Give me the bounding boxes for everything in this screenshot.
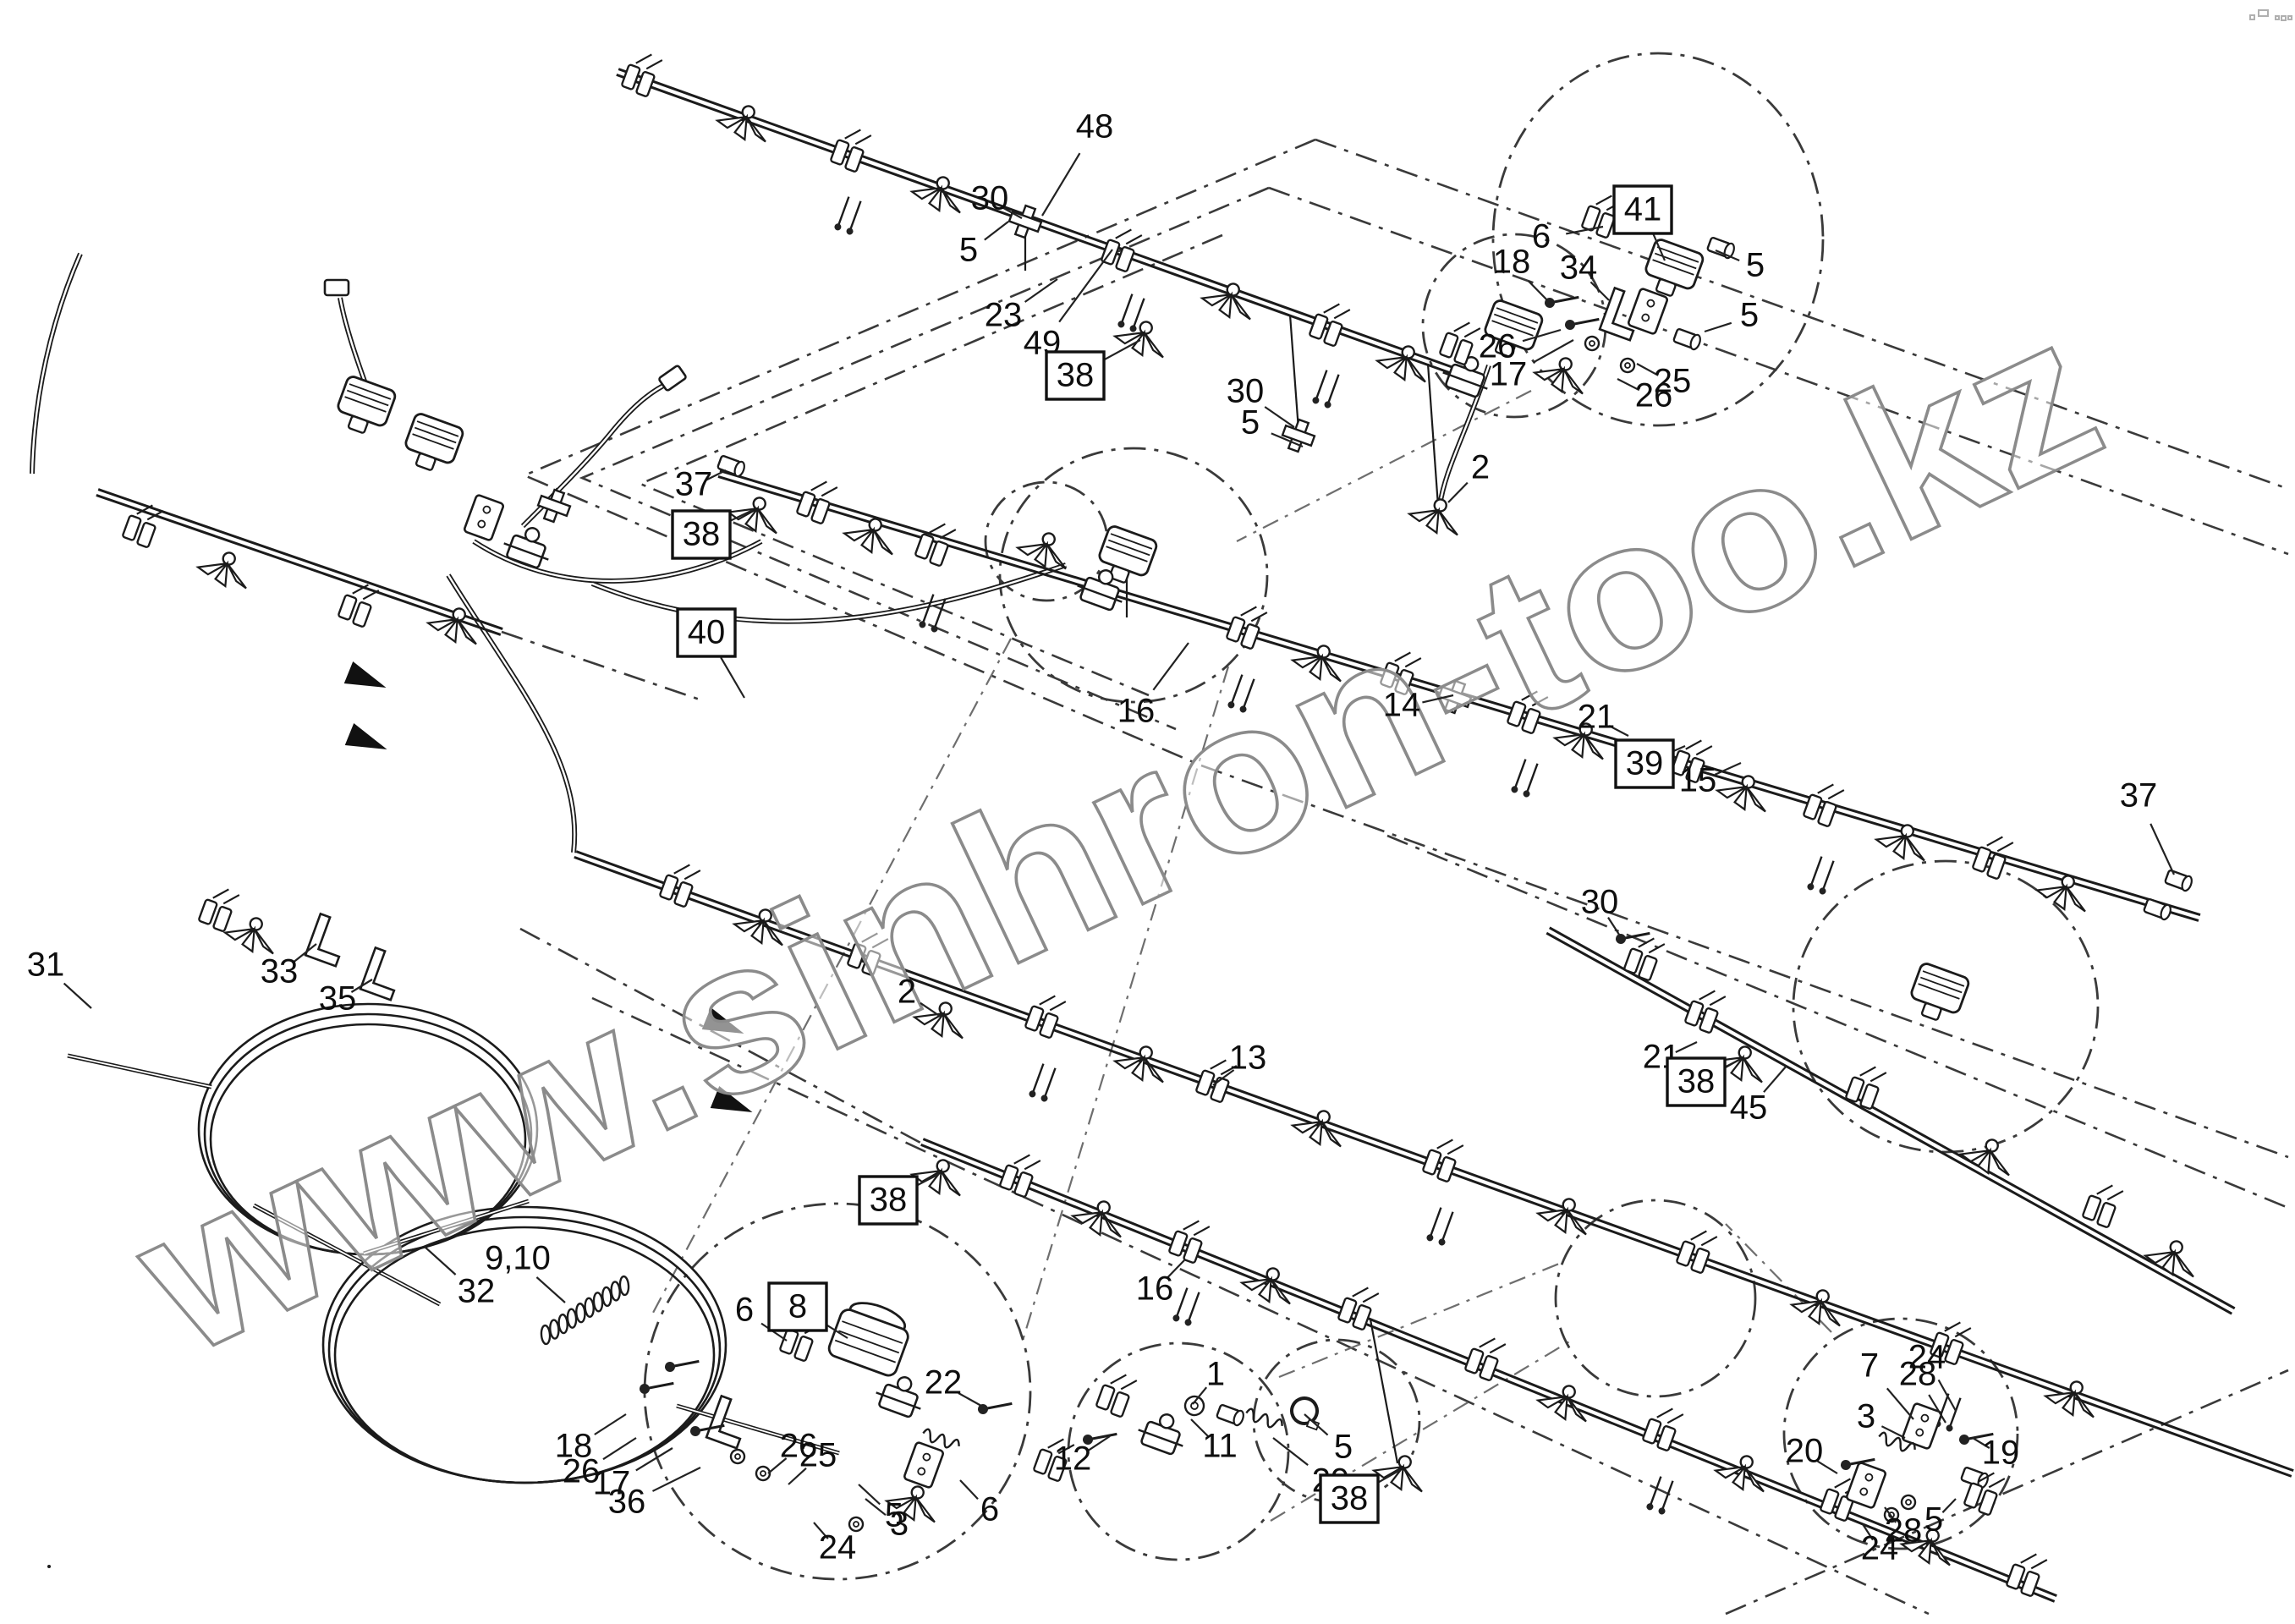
spiral-turn: [558, 1314, 568, 1334]
pump-part: [400, 412, 465, 476]
clamp-bolt: [821, 483, 837, 500]
parts-diagram-page: www.sinhron-too.kz4830523493052651834261…: [0, 0, 2295, 1624]
nozzle-part: [1070, 1193, 1131, 1242]
callout-number: 36: [608, 1484, 646, 1521]
stud-nut: [1522, 789, 1530, 798]
callout-number: 45: [1730, 1089, 1768, 1127]
callout-number: 37: [2120, 777, 2158, 815]
clamp-bolt: [1111, 1371, 1127, 1388]
callout-number: 13: [1229, 1040, 1267, 1077]
clamp-bolt: [1657, 1405, 1673, 1422]
clamp-bolt: [1353, 1284, 1369, 1301]
nozzle-part: [1535, 1377, 1596, 1426]
washer-part: [729, 1448, 747, 1466]
corner-mark: [2288, 16, 2292, 19]
block-body: [1902, 1403, 1942, 1450]
washer-outer: [1619, 357, 1637, 375]
callout: 31: [27, 946, 91, 1008]
plug-part: [2144, 897, 2172, 920]
plug-part: [1673, 327, 1702, 350]
clamp-part: [1623, 932, 1666, 981]
leader-line: [1025, 279, 1057, 302]
hose-outer: [32, 254, 80, 474]
callout: 22: [925, 1364, 981, 1406]
valve-part: [500, 520, 557, 571]
callout: 30: [1227, 373, 1294, 427]
page-dot: [47, 1565, 51, 1568]
stud: [1430, 1208, 1441, 1237]
dash-dot-border: [502, 632, 702, 700]
boltpair-part: [1311, 369, 1342, 409]
disc-outer: [1183, 1394, 1206, 1418]
callout-number: 35: [319, 980, 357, 1018]
clamp-bolt: [1818, 781, 1834, 798]
callout: 3: [1857, 1398, 1905, 1438]
spiral-turn: [576, 1303, 585, 1323]
callout-number: 33: [261, 953, 299, 990]
callout: 37: [2120, 777, 2174, 875]
clamp-bolt: [223, 891, 239, 908]
callout-number: 21: [1578, 699, 1616, 736]
stud-nut: [1945, 1424, 1953, 1432]
clamp-bolt: [1437, 1136, 1453, 1153]
callout-number: 16: [1117, 693, 1156, 730]
stud-nut: [1437, 1237, 1446, 1246]
nozzle-part: [726, 489, 787, 538]
clamp-bolt: [1987, 833, 2003, 850]
callout-number: 6: [980, 1491, 999, 1528]
clamp-bolt: [2021, 1550, 2037, 1567]
motor-part: [826, 1295, 914, 1378]
clamp-part: [2082, 1179, 2124, 1228]
pump-body: [1910, 962, 1970, 1014]
leader-line: [595, 1414, 626, 1435]
block-body: [464, 495, 504, 541]
callout: 24: [814, 1522, 856, 1566]
callout: 1: [1193, 1356, 1225, 1404]
nozzle-part: [1371, 1447, 1432, 1496]
clamp-bolt: [1447, 1141, 1463, 1158]
callout-number: 5: [1740, 297, 1759, 334]
stud: [850, 201, 860, 230]
callout-number: 18: [1493, 244, 1531, 281]
nozzle-part: [1200, 275, 1260, 324]
stud-nut: [1657, 1506, 1666, 1515]
stud: [1316, 370, 1326, 399]
stud-nut: [1818, 886, 1826, 895]
stud: [1442, 1212, 1452, 1241]
callout-number: 34: [1560, 250, 1598, 287]
clamp-part: [1168, 1215, 1211, 1264]
detail-connector-line: [1279, 1262, 1563, 1377]
washer-part: [1619, 357, 1637, 375]
clamp-bolt: [1667, 1410, 1683, 1427]
bolt-head: [1839, 1458, 1852, 1471]
callout: 34: [1560, 250, 1609, 300]
bolt-head: [663, 1360, 676, 1373]
detail-circle: [645, 1204, 1030, 1579]
boxed-callout-number: 39: [1626, 745, 1664, 782]
callout: 12: [1054, 1436, 1110, 1478]
block-body: [1628, 288, 1668, 335]
leader-line: [2150, 824, 2174, 875]
stud: [1033, 1064, 1043, 1093]
nozzle-part: [222, 909, 283, 958]
stud: [1189, 1292, 1199, 1321]
clamp-bolt: [1696, 742, 1712, 759]
dash-dot-border: [1387, 836, 2288, 1208]
callout-number: 6: [735, 1292, 754, 1329]
clamp-bolt: [646, 56, 662, 73]
stud-nut: [1806, 882, 1815, 891]
callout-number: 22: [925, 1364, 963, 1402]
plug-part: [1707, 236, 1736, 259]
boxed-callout: 39: [1616, 740, 1685, 787]
callout-number: 9,10: [485, 1240, 551, 1277]
nozzle-part: [1713, 1447, 1774, 1496]
stud: [1122, 294, 1132, 323]
plug-part: [1216, 1403, 1245, 1426]
bolt-head: [1957, 1433, 1970, 1446]
bolt-shank: [1570, 310, 1599, 333]
clamp-bolt: [1860, 1063, 1876, 1080]
disc-part: [1183, 1394, 1206, 1418]
callout-number: 14: [1383, 687, 1421, 724]
block-body: [903, 1442, 944, 1489]
stud: [838, 197, 848, 226]
boom-pipe-line: [96, 495, 501, 634]
clamp-bolt: [2031, 1555, 2047, 1572]
detail-circle: [1556, 1200, 1755, 1396]
clamp-bolt: [1251, 608, 1267, 625]
boltpair-part: [1028, 1062, 1058, 1102]
clamp-bolt: [1997, 838, 2013, 855]
callout-number: 5: [1334, 1429, 1353, 1466]
pump-body: [1098, 524, 1158, 577]
washer-part: [1900, 1494, 1918, 1512]
drop-line: [1370, 1319, 1397, 1463]
clamp-bolt: [1686, 737, 1702, 754]
callout-number: 19: [1982, 1435, 2020, 1472]
callout: 6: [960, 1480, 999, 1528]
clamp-bolt: [1870, 1068, 1886, 1085]
hose-outer: [592, 565, 1066, 622]
tee-part: [1006, 202, 1045, 241]
leader-line: [1265, 407, 1294, 427]
clamp-bolt: [1014, 1151, 1030, 1168]
detail-circle: [1068, 1343, 1288, 1560]
clamp-bolt: [1121, 1376, 1137, 1393]
coil-tail-inner: [68, 1056, 211, 1087]
callout-number: 24: [819, 1529, 857, 1566]
leader-line: [1101, 340, 1140, 362]
tee-part: [1279, 416, 1318, 455]
clamp-bolt: [674, 861, 690, 878]
stud-nut: [1117, 320, 1125, 328]
block-part: [1846, 1462, 1886, 1509]
block-part: [903, 1442, 944, 1489]
block-part: [1628, 288, 1668, 335]
callout: 19: [1973, 1435, 2019, 1472]
callout: 30: [1581, 884, 1621, 937]
leader-line: [1448, 483, 1468, 502]
clamp-bolt: [1211, 1056, 1227, 1073]
clamp-bolt: [2107, 1187, 2123, 1204]
callout-number: 5: [959, 232, 978, 269]
callout-number: 5: [1746, 247, 1765, 284]
callout: 5: [1705, 297, 1759, 334]
spring-coils: [1244, 1407, 1284, 1431]
leader-line: [960, 1480, 978, 1499]
spiral-turn: [593, 1292, 602, 1312]
stud-nut: [1510, 785, 1518, 793]
clamp-bolt: [1639, 935, 1655, 952]
bolt-shank: [670, 1352, 699, 1375]
leader-line: [536, 1277, 565, 1303]
block-body: [1846, 1462, 1886, 1509]
clamp-bolt: [1116, 226, 1132, 243]
clamp-bolt: [1691, 1227, 1707, 1244]
clamp-bolt: [855, 131, 871, 148]
clamp-bolt: [1480, 1335, 1496, 1352]
stud: [1811, 857, 1821, 886]
callout-number: 2: [898, 974, 916, 1011]
callout-number: 20: [1786, 1433, 1824, 1470]
stud-nut: [845, 227, 854, 235]
leader-line: [1764, 1066, 1787, 1092]
block-part: [464, 495, 504, 541]
spiral-turn: [619, 1276, 629, 1296]
callout-number: 5: [1924, 1501, 1943, 1539]
callout: 20: [1786, 1433, 1837, 1473]
callout-number: 28: [1899, 1356, 1937, 1393]
callout-number: 3: [890, 1506, 909, 1543]
nozzle-part: [1958, 1131, 2019, 1180]
drop-line: [1290, 315, 1298, 430]
callout-number: 17: [1490, 356, 1528, 393]
washer-outer: [1584, 335, 1601, 353]
boxed-callout: 8: [769, 1283, 848, 1338]
bolt-part: [976, 1393, 1012, 1423]
bolt-part: [638, 1373, 673, 1402]
leader-line: [64, 984, 91, 1008]
clamp-bolt: [1828, 786, 1844, 803]
nozzle-part: [842, 510, 903, 559]
callout: 9,10: [485, 1240, 565, 1303]
boxed-callout: 38: [1320, 1470, 1400, 1522]
stud: [1177, 1288, 1187, 1317]
callout-number: 12: [1054, 1440, 1092, 1478]
clamp-bolt: [1334, 305, 1350, 322]
stud-nut: [1311, 396, 1320, 404]
clamp-bolt: [636, 51, 652, 68]
clamp-bolt: [811, 478, 827, 495]
clamp-part: [830, 123, 872, 173]
boxed-callout-number: 38: [1057, 357, 1095, 394]
boxed-callout-number: 38: [1331, 1480, 1369, 1517]
callout-number: 15: [1679, 762, 1717, 799]
boltpair-part: [1806, 855, 1837, 895]
spiral-turn: [541, 1325, 550, 1345]
pump-body: [1644, 238, 1705, 290]
callout: 16: [1136, 1260, 1184, 1308]
stud-nut: [1425, 1233, 1434, 1242]
bolt-part: [663, 1351, 699, 1380]
clamp-bolt: [213, 886, 229, 903]
leader-line: [1059, 250, 1112, 322]
callout-number: 23: [985, 297, 1023, 334]
stud-nut: [1172, 1314, 1180, 1322]
washer-outer: [729, 1448, 747, 1466]
leader-line: [1529, 281, 1553, 306]
spiral-turn: [611, 1281, 620, 1301]
nozzle-part: [2143, 1232, 2204, 1281]
callout-number: 11: [1202, 1428, 1238, 1465]
boxed-callout-number: 40: [688, 614, 726, 651]
callout-number: 2: [1471, 449, 1490, 486]
leader-line: [652, 1468, 700, 1491]
callout: 49: [1024, 250, 1112, 362]
boxed-callout-number: 38: [1677, 1063, 1716, 1100]
leader-line: [1273, 1438, 1308, 1465]
hose-inner: [32, 254, 80, 474]
bracket-shape: [360, 947, 405, 1000]
pump-part: [332, 375, 398, 439]
leader-line: [721, 657, 744, 698]
boltpair-part: [1172, 1287, 1202, 1326]
boxed-callout-number: 41: [1624, 191, 1662, 228]
nozzle-part: [1874, 816, 1935, 865]
boom-pipe-line: [1550, 928, 2235, 1309]
spiral-wrap: [541, 1276, 629, 1345]
leader-line: [985, 222, 1008, 240]
dash-dot-border: [1726, 1370, 2288, 1614]
corner-mark: [2276, 16, 2279, 19]
pump-part: [1906, 962, 1971, 1026]
boxed-callout: 38: [859, 1174, 939, 1224]
bracket-part: [360, 947, 405, 1000]
callout-number: 26: [1635, 377, 1673, 414]
bolt-part: [1563, 309, 1599, 338]
stud: [923, 595, 933, 623]
pump-body: [404, 412, 464, 464]
bolt-shank: [1550, 288, 1578, 311]
callout-number: 32: [458, 1273, 496, 1310]
stud-nut: [1645, 1502, 1654, 1511]
tee-part: [535, 486, 574, 525]
boxed-callout-number: 8: [788, 1288, 807, 1325]
callout: 35: [319, 979, 372, 1018]
flow-arrow: [345, 723, 392, 760]
corner-mark: [2281, 16, 2286, 20]
stud: [1662, 1481, 1672, 1510]
stud-nut: [1183, 1318, 1192, 1326]
clamp-bolt: [1194, 1222, 1210, 1239]
valve-part: [1134, 1407, 1191, 1457]
clamp-bolt: [1454, 319, 1470, 336]
valve-part: [872, 1369, 929, 1420]
callout-number: 37: [675, 466, 713, 503]
washer-outer: [1900, 1494, 1918, 1512]
clamp-bolt: [2097, 1182, 2113, 1199]
clamp-part: [1337, 1281, 1380, 1330]
callout-number: 25: [799, 1437, 837, 1474]
bolt-shank: [1088, 1425, 1117, 1448]
callout: 5: [1924, 1499, 1956, 1539]
callout-number: 48: [1076, 108, 1114, 145]
nozzle-part: [1112, 313, 1173, 362]
nozzle-part: [1015, 524, 1076, 573]
callout-number: 3: [1857, 1398, 1875, 1435]
stud-nut: [1040, 1094, 1048, 1102]
bolt-head: [638, 1382, 651, 1395]
clamp-bolt: [1363, 1289, 1379, 1306]
pump-body: [337, 375, 397, 427]
bolt-head: [1563, 318, 1576, 331]
clamp-bolt: [1183, 1217, 1200, 1234]
callout-number: 7: [1860, 1347, 1879, 1385]
hose-inner: [592, 565, 1066, 622]
block-part: [1902, 1403, 1942, 1450]
clamp-bolt: [1699, 987, 1716, 1004]
clamp-bolt: [1024, 1156, 1040, 1173]
boom-pipe-line: [98, 490, 502, 629]
callout-number: 16: [1136, 1270, 1174, 1308]
callout: 5: [1304, 1414, 1353, 1466]
clamp-bolt: [1710, 992, 1726, 1009]
bolt-shank: [645, 1374, 673, 1397]
leader-line: [1705, 323, 1732, 332]
callout: 24: [1861, 1524, 1899, 1567]
boltpair-part: [1425, 1206, 1456, 1246]
clamp-part: [1095, 1369, 1138, 1418]
callout-number: 1: [1206, 1356, 1225, 1393]
nozzle-part: [1532, 349, 1593, 398]
bracket-part: [305, 913, 350, 966]
spiral-turn: [585, 1298, 594, 1317]
bolt-shank: [983, 1395, 1012, 1418]
bolt-head: [1614, 932, 1627, 945]
clamp-bolt: [1324, 300, 1340, 317]
bolt-head: [689, 1424, 701, 1437]
clamp-part: [1684, 985, 1727, 1034]
stud-nut: [1028, 1089, 1036, 1098]
clamp-part: [198, 883, 240, 932]
stud: [1045, 1068, 1055, 1097]
spiral-turn: [550, 1319, 559, 1339]
corner-mark: [2259, 10, 2268, 16]
flow-arrow: [344, 661, 391, 699]
callout: 37: [675, 466, 726, 503]
clamp-bolt: [1835, 1475, 1851, 1492]
boom-pipe-line: [1546, 933, 2232, 1314]
callout: 48: [1042, 108, 1113, 216]
washer-part: [1584, 335, 1601, 353]
callout-number: 31: [27, 946, 65, 984]
callout: 11: [1191, 1419, 1238, 1465]
bracket-shape: [305, 913, 350, 966]
clamp-bolt: [1701, 1232, 1717, 1249]
callout-number: 6: [1532, 218, 1551, 255]
leader-line: [1939, 1380, 1956, 1411]
callout-number: 5: [1241, 404, 1260, 442]
nozzle-part: [426, 600, 486, 649]
ring-part: [1288, 1395, 1325, 1429]
clamp-bolt: [1241, 603, 1257, 620]
sprayer-boom-parts-diagram: www.sinhron-too.kz4830523493052651834261…: [0, 0, 2295, 1624]
boltpair-part: [1645, 1475, 1676, 1515]
clamp-bolt: [1649, 940, 1665, 957]
